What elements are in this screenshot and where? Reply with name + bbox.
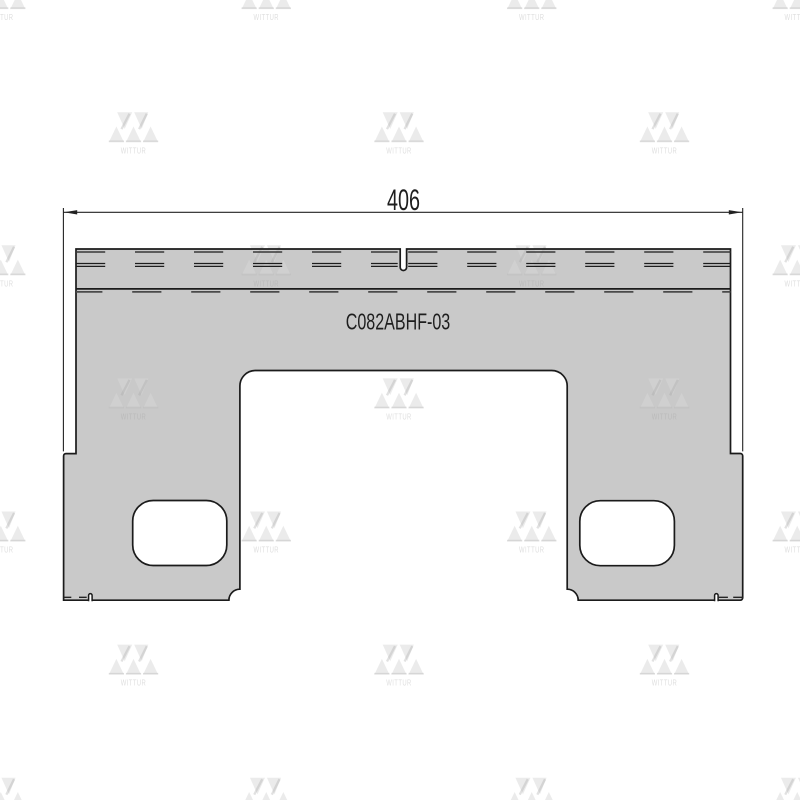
svg-text:406: 406 (387, 184, 420, 217)
svg-text:C082ABHF-03: C082ABHF-03 (346, 308, 451, 334)
